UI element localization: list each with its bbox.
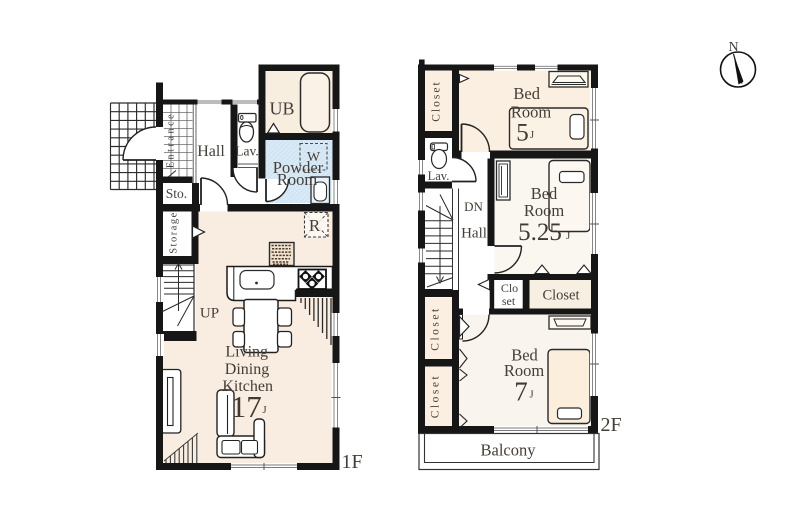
- svg-text:Lav.: Lav.: [428, 169, 450, 183]
- svg-text:2F: 2F: [600, 414, 621, 436]
- svg-text:set: set: [502, 294, 516, 308]
- svg-text:Living: Living: [225, 344, 268, 361]
- svg-text:Sto.: Sto.: [166, 186, 187, 201]
- svg-text:5: 5: [516, 120, 529, 147]
- svg-text:Hall: Hall: [461, 226, 487, 242]
- svg-text:Lav.: Lav.: [235, 144, 259, 159]
- svg-text:UP: UP: [200, 306, 219, 322]
- svg-text:Storage: Storage: [169, 211, 180, 254]
- svg-text:Closet: Closet: [542, 288, 579, 304]
- svg-text:UB: UB: [269, 99, 294, 119]
- svg-text:Entrance: Entrance: [166, 112, 177, 168]
- svg-text:N: N: [728, 40, 738, 55]
- svg-text:J: J: [530, 390, 534, 401]
- svg-text:Room: Room: [524, 201, 565, 220]
- svg-text:R: R: [309, 216, 321, 235]
- svg-text:17: 17: [231, 389, 262, 424]
- svg-text:5.25: 5.25: [518, 219, 562, 246]
- svg-text:J: J: [530, 130, 534, 141]
- svg-text:Closet: Closet: [431, 80, 443, 121]
- svg-text:Hall: Hall: [197, 143, 225, 160]
- svg-text:Closet: Closet: [430, 374, 442, 418]
- svg-text:Clo: Clo: [501, 281, 518, 295]
- svg-text:7: 7: [514, 377, 528, 407]
- svg-text:1F: 1F: [341, 451, 362, 473]
- svg-text:Balcony: Balcony: [481, 441, 537, 460]
- svg-text:Closet: Closet: [430, 306, 442, 350]
- svg-text:Room: Room: [277, 170, 318, 189]
- svg-text:DN: DN: [464, 199, 483, 214]
- svg-text:Bed: Bed: [513, 84, 540, 103]
- svg-text:Dining: Dining: [225, 361, 269, 378]
- svg-text:J: J: [263, 405, 267, 416]
- svg-text:J: J: [566, 230, 571, 242]
